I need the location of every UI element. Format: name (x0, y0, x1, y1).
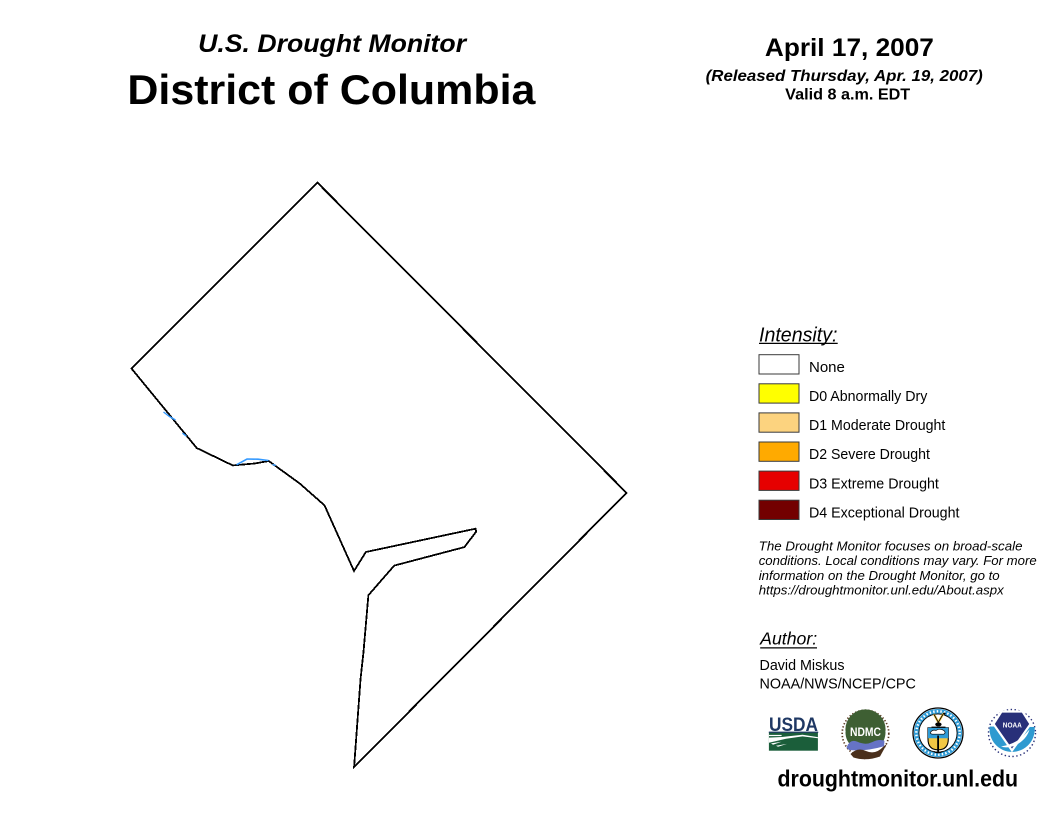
svg-text:D2 Severe Drought: D2 Severe Drought (809, 446, 931, 463)
svg-text:(Released Thursday, Apr. 19, 2: (Released Thursday, Apr. 19, 2007) (706, 68, 983, 85)
svg-text:NOAA: NOAA (1003, 721, 1022, 730)
svg-text:D4 Exceptional Drought: D4 Exceptional Drought (809, 504, 960, 521)
svg-text:D3 Extreme Drought: D3 Extreme Drought (809, 475, 940, 492)
svg-text:droughtmonitor.unl.edu: droughtmonitor.unl.edu (778, 765, 1019, 791)
svg-text:https://droughtmonitor.unl.edu: https://droughtmonitor.unl.edu/About.asp… (759, 583, 1005, 598)
svg-text:D1 Moderate Drought: D1 Moderate Drought (809, 417, 946, 434)
svg-text:information on the Drought Mon: information on the Drought Monitor, go t… (759, 568, 1000, 583)
svg-text:D0 Abnormally Dry: D0 Abnormally Dry (809, 388, 928, 405)
svg-text:NOAA/NWS/NCEP/CPC: NOAA/NWS/NCEP/CPC (760, 677, 916, 693)
svg-text:Author:: Author: (759, 629, 817, 649)
svg-text:April 17, 2007: April 17, 2007 (765, 34, 934, 62)
svg-text:David Miskus: David Miskus (760, 658, 845, 674)
svg-text:Valid 8 a.m. EDT: Valid 8 a.m. EDT (785, 87, 910, 104)
svg-text:District of Columbia: District of Columbia (127, 66, 536, 113)
svg-text:The Drought Monitor focuses on: The Drought Monitor focuses on broad-sca… (759, 539, 1023, 554)
svg-text:U.S. Drought Monitor: U.S. Drought Monitor (198, 30, 467, 58)
svg-text:None: None (809, 359, 845, 376)
svg-text:conditions. Local conditions m: conditions. Local conditions may vary. F… (759, 553, 1037, 568)
svg-text:NDMC: NDMC (850, 727, 881, 739)
